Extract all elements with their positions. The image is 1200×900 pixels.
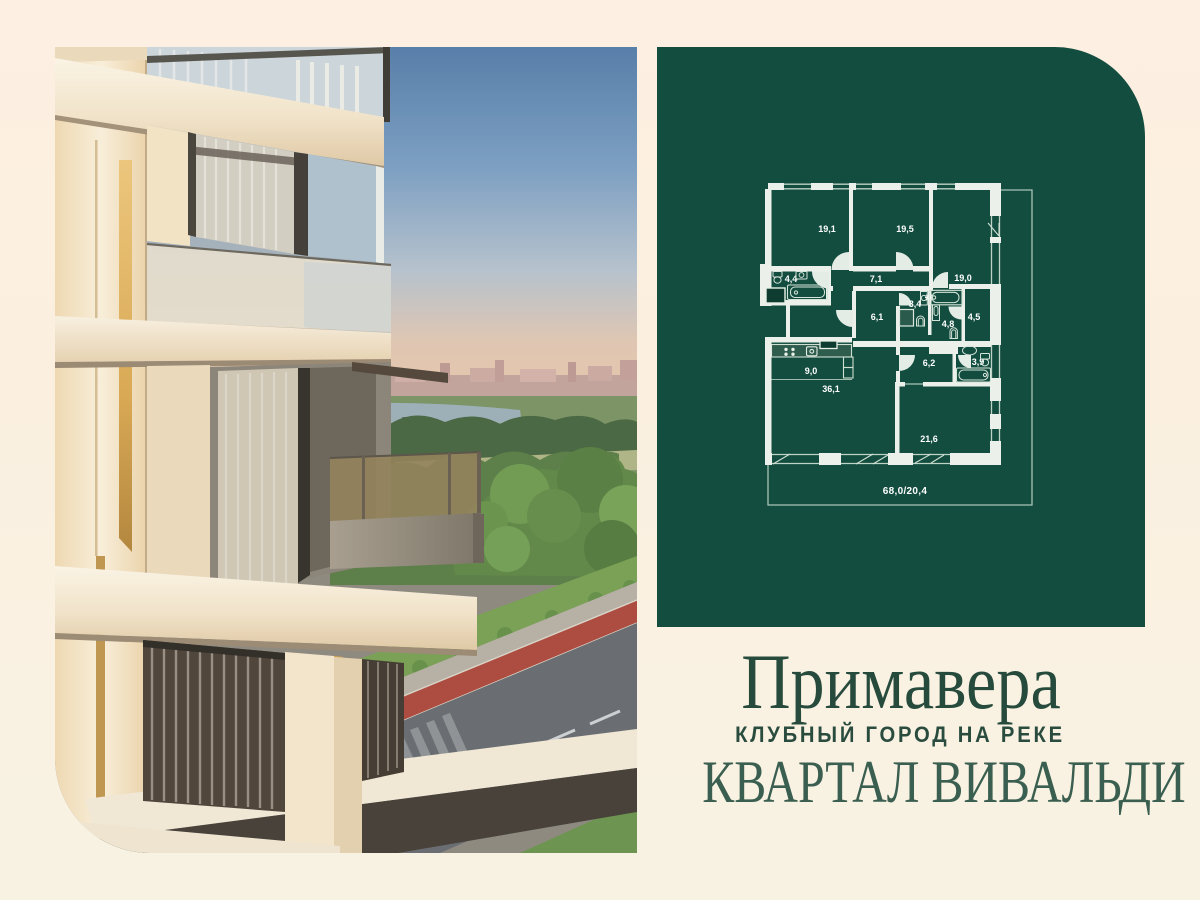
- svg-text:68,0/20,4: 68,0/20,4: [883, 486, 928, 497]
- svg-text:19,0: 19,0: [954, 273, 972, 283]
- svg-text:6,1: 6,1: [871, 312, 884, 322]
- svg-text:21,6: 21,6: [920, 434, 938, 444]
- svg-text:7,1: 7,1: [870, 274, 883, 284]
- svg-text:19,1: 19,1: [818, 224, 836, 234]
- svg-text:36,1: 36,1: [822, 384, 840, 394]
- svg-text:9,0: 9,0: [805, 366, 818, 376]
- svg-text:19,5: 19,5: [896, 224, 914, 234]
- svg-text:3,4: 3,4: [909, 299, 922, 309]
- svg-text:4,4: 4,4: [785, 274, 798, 284]
- svg-text:4,5: 4,5: [968, 312, 981, 322]
- svg-text:6,2: 6,2: [923, 358, 936, 368]
